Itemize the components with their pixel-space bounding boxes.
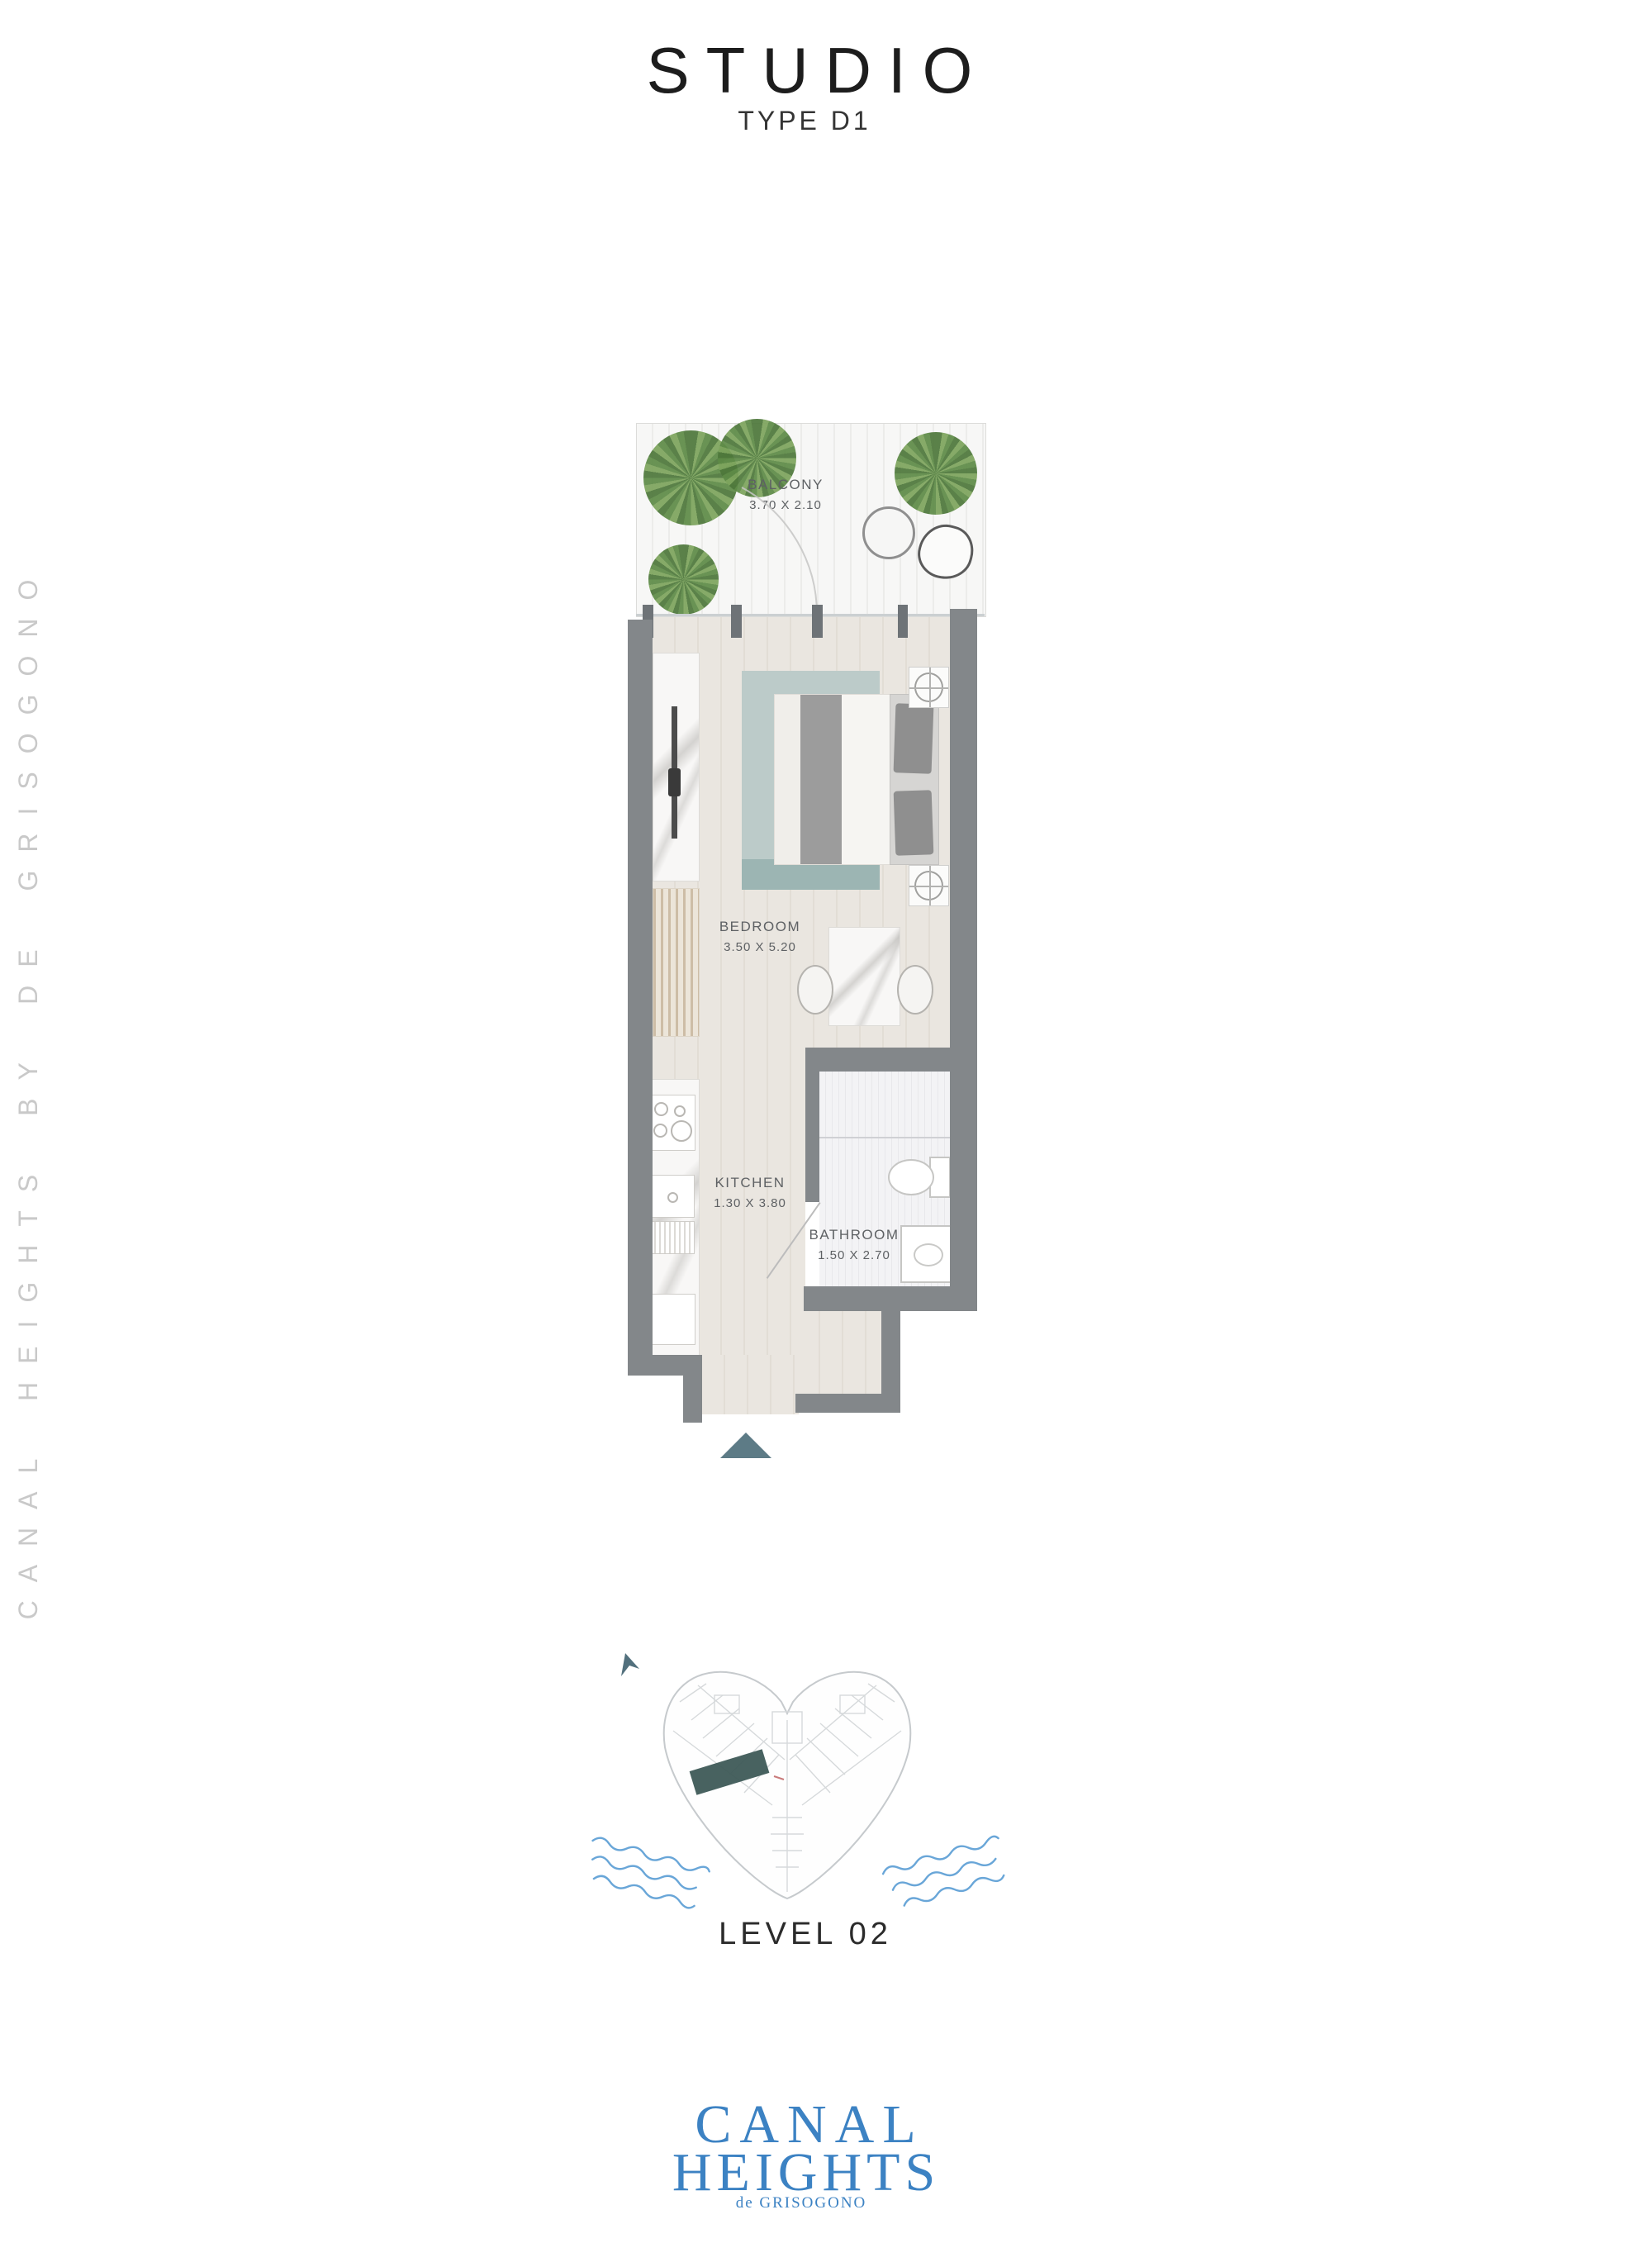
side-watermark-text: CANAL HEIGHTS BY DE GRISOGONO: [13, 512, 44, 1669]
level-label: LEVEL 02: [388, 1917, 1218, 1952]
room-dimensions: 1.30 X 3.80: [684, 1194, 816, 1214]
kitchen-label: KITCHEN 1.30 X 3.80: [684, 1171, 816, 1214]
bedroom-label: BEDROOM 3.50 X 5.20: [694, 915, 826, 958]
room-name: KITCHEN: [684, 1171, 816, 1194]
room-name: BATHROOM: [788, 1224, 920, 1246]
level-key-plan: [578, 1648, 1041, 1929]
wall-bathroom-bottom: [804, 1286, 977, 1311]
bathroom-label: BATHROOM 1.50 X 2.70: [788, 1224, 920, 1266]
room-dimensions: 1.50 X 2.70: [788, 1246, 920, 1266]
floor-plan: BALCONY 3.70 X 2.10: [624, 421, 980, 1471]
page-subtitle: TYPE D1: [388, 106, 1218, 136]
wall-entry-left: [683, 1370, 702, 1423]
wall-right: [950, 609, 977, 1311]
north-cursor-icon: [618, 1653, 644, 1681]
room-dimensions: 3.50 X 5.20: [694, 938, 826, 958]
wall-bathroom-top: [805, 1048, 977, 1072]
entrance-arrow-icon: [720, 1433, 771, 1458]
wall-left: [628, 620, 653, 1363]
brand-logo-line3: de GRISOGONO: [388, 2194, 1214, 2212]
balcony-glass-line: [636, 614, 985, 616]
brochure-page: STUDIO TYPE D1 CANAL HEIGHTS BY DE GRISO…: [0, 0, 1652, 2262]
door-frame-post: [898, 605, 908, 638]
door-frame-post: [731, 605, 742, 638]
page-title: STUDIO: [388, 33, 1231, 108]
wall-vestibule-bottom: [795, 1394, 896, 1413]
room-name: BEDROOM: [694, 915, 826, 938]
door-frame-post: [812, 605, 823, 638]
